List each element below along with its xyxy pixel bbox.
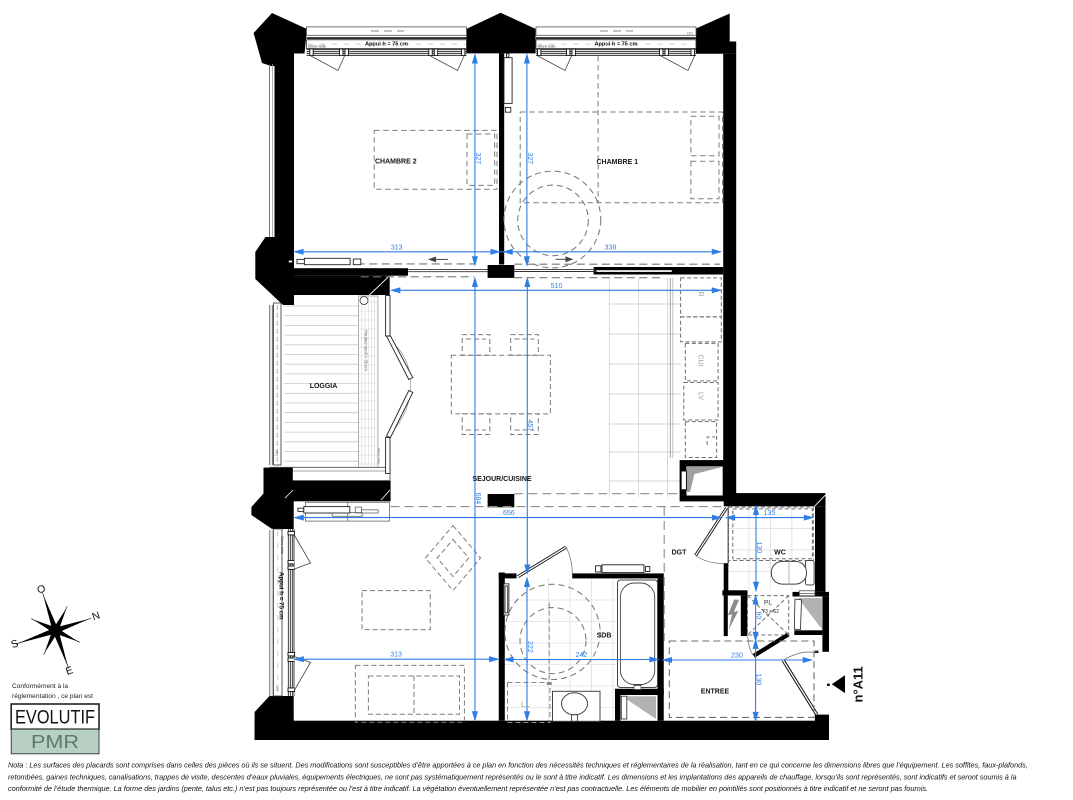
svg-text:SDB: SDB [597,633,612,640]
svg-text:OO: OO [687,31,693,36]
svg-text:réglementation , ce plan est: réglementation , ce plan est [12,693,93,700]
svg-text:313: 313 [391,245,403,252]
svg-text:510: 510 [551,283,563,290]
svg-text:684: 684 [474,493,481,505]
svg-text:130: 130 [755,674,762,686]
svg-text:Appui h = 75 cm: Appui h = 75 cm [278,572,285,620]
svg-text:conformité de l’étude thermiqu: conformité de l’étude thermique. La form… [8,784,928,793]
svg-text:Hauteur seuil < 35 cm: Hauteur seuil < 35 cm [364,330,369,371]
svg-text:n°A11: n°A11 [851,666,866,702]
svg-text:327: 327 [526,153,533,165]
svg-text:OO: OO [275,685,280,691]
svg-text:Store toile: Store toile [377,448,381,464]
svg-text:CUI: CUI [697,355,704,367]
svg-text:WC: WC [774,550,786,557]
svg-text:242: 242 [575,652,587,659]
svg-text:130: 130 [755,542,762,554]
svg-text:retombées, gaines techniques,: retombées, gaines techniques, canalisati… [8,772,1016,781]
svg-text:DGT: DGT [672,550,688,557]
svg-text:Nota : Les surfaces des placar: Nota : Les surfaces des placards sont co… [8,761,1028,770]
svg-text:LOGGIA: LOGGIA [310,383,338,390]
svg-text:327: 327 [474,153,481,165]
svg-text:CHAMBRE 1: CHAMBRE 1 [597,159,639,166]
svg-text:73 x 62: 73 x 62 [762,609,779,615]
svg-text:LV: LV [697,392,704,400]
svg-text:135: 135 [764,510,776,517]
svg-text:230: 230 [731,653,743,660]
svg-text:LL: LL [521,699,531,709]
svg-text:338: 338 [605,245,617,252]
svg-text:Store toile: Store toile [280,536,285,555]
svg-text:ENTREE: ENTREE [701,689,730,696]
svg-text:PMR: PMR [31,732,79,752]
svg-text:R: R [697,292,704,297]
svg-text:SEJOUR/CUISINE: SEJOUR/CUISINE [472,476,531,483]
svg-text:60: 60 [755,612,762,620]
svg-text:Appui h = 75 cm: Appui h = 75 cm [365,41,408,47]
svg-text:Appui h = 75 cm: Appui h = 75 cm [594,41,637,47]
svg-text:CHAMBRE 2: CHAMBRE 2 [375,159,417,166]
svg-text:313: 313 [390,652,402,659]
svg-text:Store toile: Store toile [538,44,557,49]
svg-text:Conformément à la: Conformément à la [12,683,68,690]
svg-text:Store toile: Store toile [308,44,327,49]
svg-text:457: 457 [526,420,533,432]
svg-text:PL: PL [764,600,772,607]
svg-text:222: 222 [526,641,533,653]
svg-text:656: 656 [503,510,515,517]
svg-text:OO: OO [275,450,280,456]
svg-text:EVOLUTIF: EVOLUTIF [15,708,95,729]
